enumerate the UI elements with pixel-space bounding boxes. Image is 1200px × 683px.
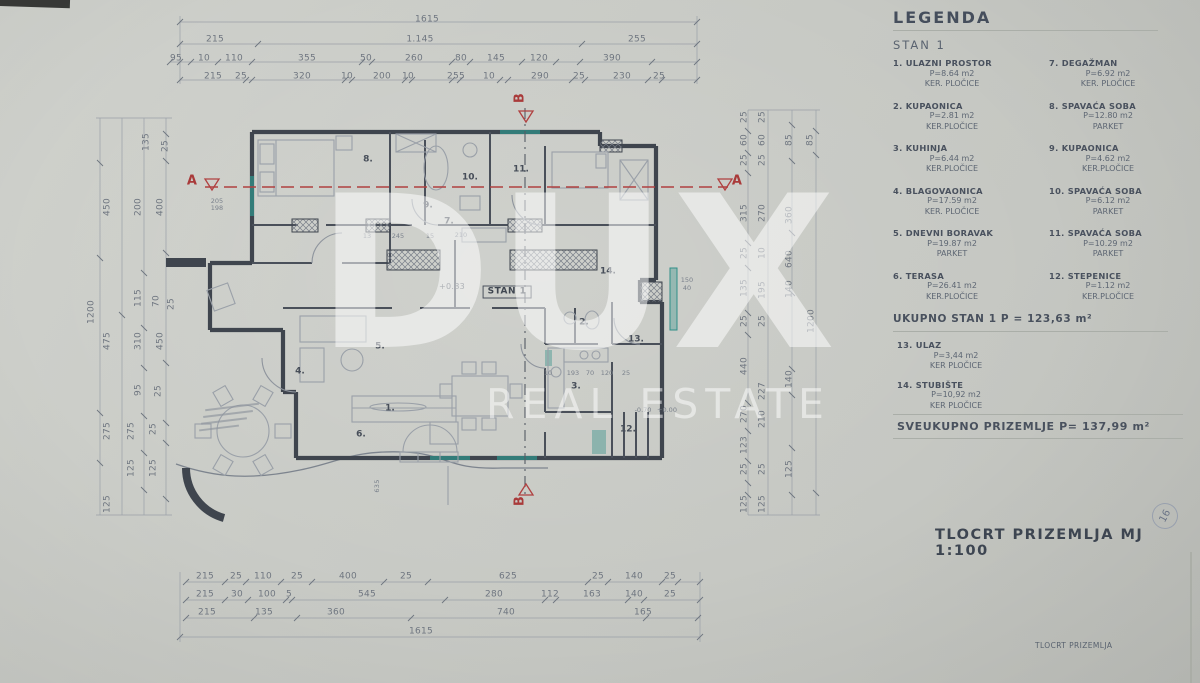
plan-annotation: 40 <box>683 285 691 292</box>
total-ground-floor-area: SVEUKUPNO PRIZEMLJE P= 137,99 m² <box>897 420 1150 433</box>
plan-annotation: -0.70 <box>635 407 652 414</box>
plan-dimension: 25 <box>759 315 768 327</box>
plan-annotation: 210 <box>455 232 467 239</box>
room-area: P=8.64 m2 <box>893 69 1011 80</box>
plan-annotation: 15 <box>426 233 434 240</box>
room-area: P=19.87 m2 <box>893 239 1011 250</box>
scanned-floor-plan-page: { "colors":{"paper":"#c9cbc6","ink":"#3f… <box>0 0 1200 683</box>
plan-dimension: 120 <box>530 55 548 64</box>
room-flooring: KER.PLOČICE <box>1049 292 1167 303</box>
room-area: P=4.62 m2 <box>1049 154 1167 165</box>
level-annotation: +0.83 <box>439 283 465 291</box>
plan-dimension: 25 <box>168 298 177 310</box>
plan-dimension: 95 <box>135 384 144 396</box>
plan-annotation: 198 <box>211 205 223 212</box>
legend-item: 5. DNEVNI BORAVAKP=19.87 m2PARKET <box>893 228 1033 260</box>
room-number-label: 6. <box>356 431 366 440</box>
section-letter: A <box>187 175 197 188</box>
plan-dimension: 195 <box>759 281 768 299</box>
plan-dimension: 140 <box>786 370 795 388</box>
plan-dimension: 125 <box>128 459 137 477</box>
room-flooring: PARKET <box>893 249 1011 260</box>
total-apartment-area: UKUPNO STAN 1 P = 123,63 m² <box>893 313 1092 325</box>
room-flooring: PARKET <box>1049 249 1167 260</box>
room-name: 12. STEPENICE <box>1049 271 1189 282</box>
divider <box>893 331 1168 332</box>
section-letter: A <box>732 175 742 188</box>
plan-dimension: 30 <box>231 591 243 600</box>
plan-dimension: 25 <box>759 463 768 475</box>
plan-dimension: 125 <box>759 495 768 513</box>
plan-annotation: 635 <box>374 479 381 492</box>
plan-dimension: 25 <box>573 73 585 82</box>
plan-text-layer: 16152151.1452559510110355502608014512039… <box>0 0 880 683</box>
divider <box>893 30 1158 31</box>
plan-dimension: 110 <box>254 573 272 582</box>
legend-item: 8. SPAVAĆA SOBAP=12.80 m2PARKET <box>1049 101 1189 133</box>
legend-item: 13. ULAZP=3,44 m2KER PLOČICE <box>897 340 1037 372</box>
plan-dimension: 135 <box>741 279 750 297</box>
drawing-title: TLOCRT PRIZEMLJA MJ 1:100 <box>935 527 1200 559</box>
plan-dimension: 270 <box>759 204 768 222</box>
plan-dimension: 125 <box>741 495 750 513</box>
plan-dimension: 50 <box>360 55 372 64</box>
plan-annotation: 120 <box>601 370 613 377</box>
plan-dimension: 310 <box>135 332 144 350</box>
legend-item: 10. SPAVAĆA SOBAP=6.12 m2PARKET <box>1049 186 1189 218</box>
room-number-label: 8. <box>363 156 373 165</box>
plan-dimension: 10 <box>402 73 414 82</box>
plan-dimension: 123 <box>741 436 750 454</box>
room-number-label: 1. <box>385 405 395 414</box>
plan-dimension: 25 <box>400 573 412 582</box>
plan-dimension: 275 <box>128 422 137 440</box>
plan-dimension: 25 <box>155 385 164 397</box>
plan-dimension: 450 <box>104 198 113 216</box>
plan-dimension: 255 <box>447 73 465 82</box>
room-area: P=6.44 m2 <box>893 154 1011 165</box>
plan-dimension: 270 <box>741 405 750 423</box>
plan-dimension: 450 <box>157 332 166 350</box>
room-number-label: 13. <box>628 336 644 345</box>
plan-dimension: 10 <box>341 73 353 82</box>
divider <box>893 414 1183 415</box>
plan-dimension: 135 <box>255 609 273 618</box>
plan-dimension: 70 <box>153 295 162 307</box>
plan-dimension: 215 <box>206 36 224 45</box>
plan-dimension: 5 <box>286 591 292 600</box>
plan-dimension: 10 <box>198 55 210 64</box>
room-name: 2. KUPAONICA <box>893 101 1033 112</box>
section-letter: B <box>514 93 527 103</box>
plan-dimension: 1615 <box>415 16 439 25</box>
plan-dimension: 275 <box>104 422 113 440</box>
page-number: 16 <box>1157 508 1173 524</box>
plan-dimension: 25 <box>741 463 750 475</box>
plan-dimension: 25 <box>291 573 303 582</box>
room-number-label: 4. <box>295 368 305 377</box>
plan-dimension: 25 <box>759 111 768 123</box>
plan-dimension: 360 <box>327 609 345 618</box>
plan-dimension: 112 <box>541 591 559 600</box>
room-flooring: KER.PLOČICE <box>893 122 1011 133</box>
room-number-label: 7. <box>444 218 454 227</box>
room-number-label: 2. <box>579 319 589 328</box>
legend-panel: LEGENDA STAN 1 1. ULAZNI PROSTORP=8.64 m… <box>880 0 1200 683</box>
plan-dimension: 60 <box>759 134 768 146</box>
plan-dimension: 125 <box>150 459 159 477</box>
plan-dimension: 25 <box>759 154 768 166</box>
legend-extra-rooms: 13. ULAZP=3,44 m2KER PLOČICE14. STUBIŠTE… <box>897 340 1037 419</box>
plan-dimension: 25 <box>162 140 171 152</box>
plan-dimension: 545 <box>358 591 376 600</box>
plan-dimension: 85 <box>786 134 795 146</box>
room-number-label: 12. <box>620 426 636 435</box>
plan-dimension: 290 <box>531 73 549 82</box>
plan-dimension: 140 <box>625 573 643 582</box>
legend-item: 12. STEPENICEP=1.12 m2KER.PLOČICE <box>1049 271 1189 303</box>
room-flooring: KER.PLOČICE <box>893 164 1011 175</box>
legend-item: 11. SPAVAĆA SOBAP=10.29 m2PARKET <box>1049 228 1189 260</box>
plan-dimension: 25 <box>592 573 604 582</box>
title-block-footer: TLOCRT PRIZEMLJA <box>1035 641 1112 650</box>
legend-item: 2. KUPAONICAP=2.81 m2KER.PLOČICE <box>893 101 1033 133</box>
plan-dimension: 25 <box>741 154 750 166</box>
plan-annotation: 13 <box>363 233 371 240</box>
plan-dimension: 85 <box>807 134 816 146</box>
plan-dimension: 230 <box>613 73 631 82</box>
plan-dimension: 25 <box>653 73 665 82</box>
room-name: 11. SPAVAĆA SOBA <box>1049 228 1189 239</box>
room-number-label: 9. <box>423 202 433 211</box>
room-area: P=10,92 m2 <box>897 390 1015 401</box>
plan-dimension: 1.145 <box>406 36 433 45</box>
plan-annotation: 25 <box>622 370 630 377</box>
room-area: P=17.59 m2 <box>893 196 1011 207</box>
plan-dimension: 740 <box>497 609 515 618</box>
plan-annotation: +0.00 <box>657 407 677 414</box>
room-flooring: PARKET <box>1049 122 1167 133</box>
legend-subtitle: STAN 1 <box>893 38 946 52</box>
legend-item: 14. STUBIŠTEP=10,92 m2KER PLOČICE <box>897 380 1037 412</box>
plan-dimension: 25 <box>230 573 242 582</box>
plan-dimension: 210 <box>759 410 768 428</box>
room-flooring: KER PLOČICE <box>897 361 1015 372</box>
room-flooring: KER. PLOČICE <box>1049 79 1167 90</box>
room-name: 9. KUPAONICA <box>1049 143 1189 154</box>
plan-dimension: 25 <box>741 315 750 327</box>
legend-item: 3. KUHINJAP=6.44 m2KER.PLOČICE <box>893 143 1033 175</box>
plan-dimension: 140 <box>786 280 795 298</box>
plan-dimension: 1200 <box>88 300 97 324</box>
room-flooring: KER.PLOČICE <box>1049 164 1167 175</box>
room-name: 10. SPAVAĆA SOBA <box>1049 186 1189 197</box>
legend-item: 7. DEGAŽMANP=6.92 m2KER. PLOČICE <box>1049 58 1189 90</box>
plan-dimension: 60 <box>741 134 750 146</box>
room-name: 1. ULAZNI PROSTOR <box>893 58 1033 69</box>
plan-dimension: 215 <box>198 609 216 618</box>
plan-dimension: 440 <box>741 357 750 375</box>
plan-dimension: 200 <box>373 73 391 82</box>
plan-dimension: 640 <box>786 250 795 268</box>
room-flooring: KER. PLOČICE <box>893 79 1011 90</box>
room-number-label: 5. <box>375 343 385 352</box>
plan-annotation: 150 <box>681 277 693 284</box>
plan-dimension: 355 <box>298 55 316 64</box>
plan-dimension: 400 <box>157 198 166 216</box>
legend-item: 4. BLAGOVAONICAP=17.59 m2KER. PLOČICE <box>893 186 1033 218</box>
legend-item: 1. ULAZNI PROSTORP=8.64 m2KER. PLOČICE <box>893 58 1033 90</box>
legend-room-list: 1. ULAZNI PROSTORP=8.64 m2KER. PLOČICE7.… <box>893 58 1199 302</box>
room-number-label: 14. <box>600 268 616 277</box>
plan-dimension: 625 <box>499 573 517 582</box>
room-name: 7. DEGAŽMAN <box>1049 58 1189 69</box>
plan-dimension: 215 <box>196 573 214 582</box>
plan-dimension: 135 <box>143 133 152 151</box>
room-flooring: KER.PLOČICE <box>893 292 1011 303</box>
plan-dimension: 163 <box>583 591 601 600</box>
plan-dimension: 227 <box>759 382 768 400</box>
plan-annotation: 10 <box>544 370 552 377</box>
plan-dimension: 360 <box>786 206 795 224</box>
plan-dimension: 145 <box>487 55 505 64</box>
plan-dimension: 280 <box>485 591 503 600</box>
room-name: 5. DNEVNI BORAVAK <box>893 228 1033 239</box>
room-area: P=12.80 m2 <box>1049 111 1167 122</box>
plan-dimension: 140 <box>625 591 643 600</box>
room-flooring: PARKET <box>1049 207 1167 218</box>
plan-dimension: 95 <box>170 55 182 64</box>
room-area: P=6.12 m2 <box>1049 196 1167 207</box>
room-area: P=3,44 m2 <box>897 351 1015 362</box>
room-flooring: KER PLOČICE <box>897 401 1015 412</box>
plan-dimension: 215 <box>204 73 222 82</box>
room-area: P=1.12 m2 <box>1049 281 1167 292</box>
plan-dimension: 125 <box>786 460 795 478</box>
room-name: 4. BLAGOVAONICA <box>893 186 1033 197</box>
plan-dimension: 400 <box>339 573 357 582</box>
room-number-label: 10. <box>462 174 478 183</box>
room-area: P=6.92 m2 <box>1049 69 1167 80</box>
plan-dimension: 260 <box>405 55 423 64</box>
plan-dimension: 80 <box>455 55 467 64</box>
apartment-label: STAN 1 <box>483 286 532 299</box>
room-name: 13. ULAZ <box>897 340 1037 351</box>
room-number-label: 11. <box>513 166 529 175</box>
room-area: P=10.29 m2 <box>1049 239 1167 250</box>
plan-dimension: 125 <box>104 495 113 513</box>
room-area: P=2.81 m2 <box>893 111 1011 122</box>
plan-dimension: 25 <box>741 247 750 259</box>
plan-dimension: 315 <box>741 204 750 222</box>
room-number-label: 3. <box>571 383 581 392</box>
plan-dimension: 320 <box>293 73 311 82</box>
plan-dimension: 115 <box>135 289 144 307</box>
plan-dimension: 390 <box>603 55 621 64</box>
plan-dimension: 25 <box>664 591 676 600</box>
plan-annotation: 193 <box>567 370 579 377</box>
plan-dimension: 475 <box>104 332 113 350</box>
plan-dimension: 25 <box>235 73 247 82</box>
plan-dimension: 255 <box>628 36 646 45</box>
legend-title: LEGENDA <box>893 8 991 27</box>
plan-dimension: 100 <box>258 591 276 600</box>
plan-dimension: 25 <box>741 111 750 123</box>
room-name: 8. SPAVAĆA SOBA <box>1049 101 1189 112</box>
plan-dimension: 110 <box>225 55 243 64</box>
plan-dimension: 165 <box>634 609 652 618</box>
room-flooring: KER. PLOČICE <box>893 207 1011 218</box>
room-name: 14. STUBIŠTE <box>897 380 1037 391</box>
plan-annotation: 245 <box>392 233 404 240</box>
section-letter: B <box>514 496 527 506</box>
room-area: P=26.41 m2 <box>893 281 1011 292</box>
plan-dimension: 25 <box>664 573 676 582</box>
plan-annotation: 70 <box>586 370 594 377</box>
room-name: 6. TERASA <box>893 271 1033 282</box>
legend-item: 6. TERASAP=26.41 m2KER.PLOČICE <box>893 271 1033 303</box>
plan-dimension: 215 <box>196 591 214 600</box>
divider <box>893 438 1183 439</box>
plan-dimension: 1615 <box>409 628 433 637</box>
plan-dimension: 25 <box>150 423 159 435</box>
plan-dimension: 10 <box>483 73 495 82</box>
plan-dimension: 1200 <box>808 309 817 333</box>
room-name: 3. KUHINJA <box>893 143 1033 154</box>
plan-dimension: 200 <box>135 198 144 216</box>
legend-item: 9. KUPAONICAP=4.62 m2KER.PLOČICE <box>1049 143 1189 175</box>
plan-dimension: 10 <box>759 247 768 259</box>
